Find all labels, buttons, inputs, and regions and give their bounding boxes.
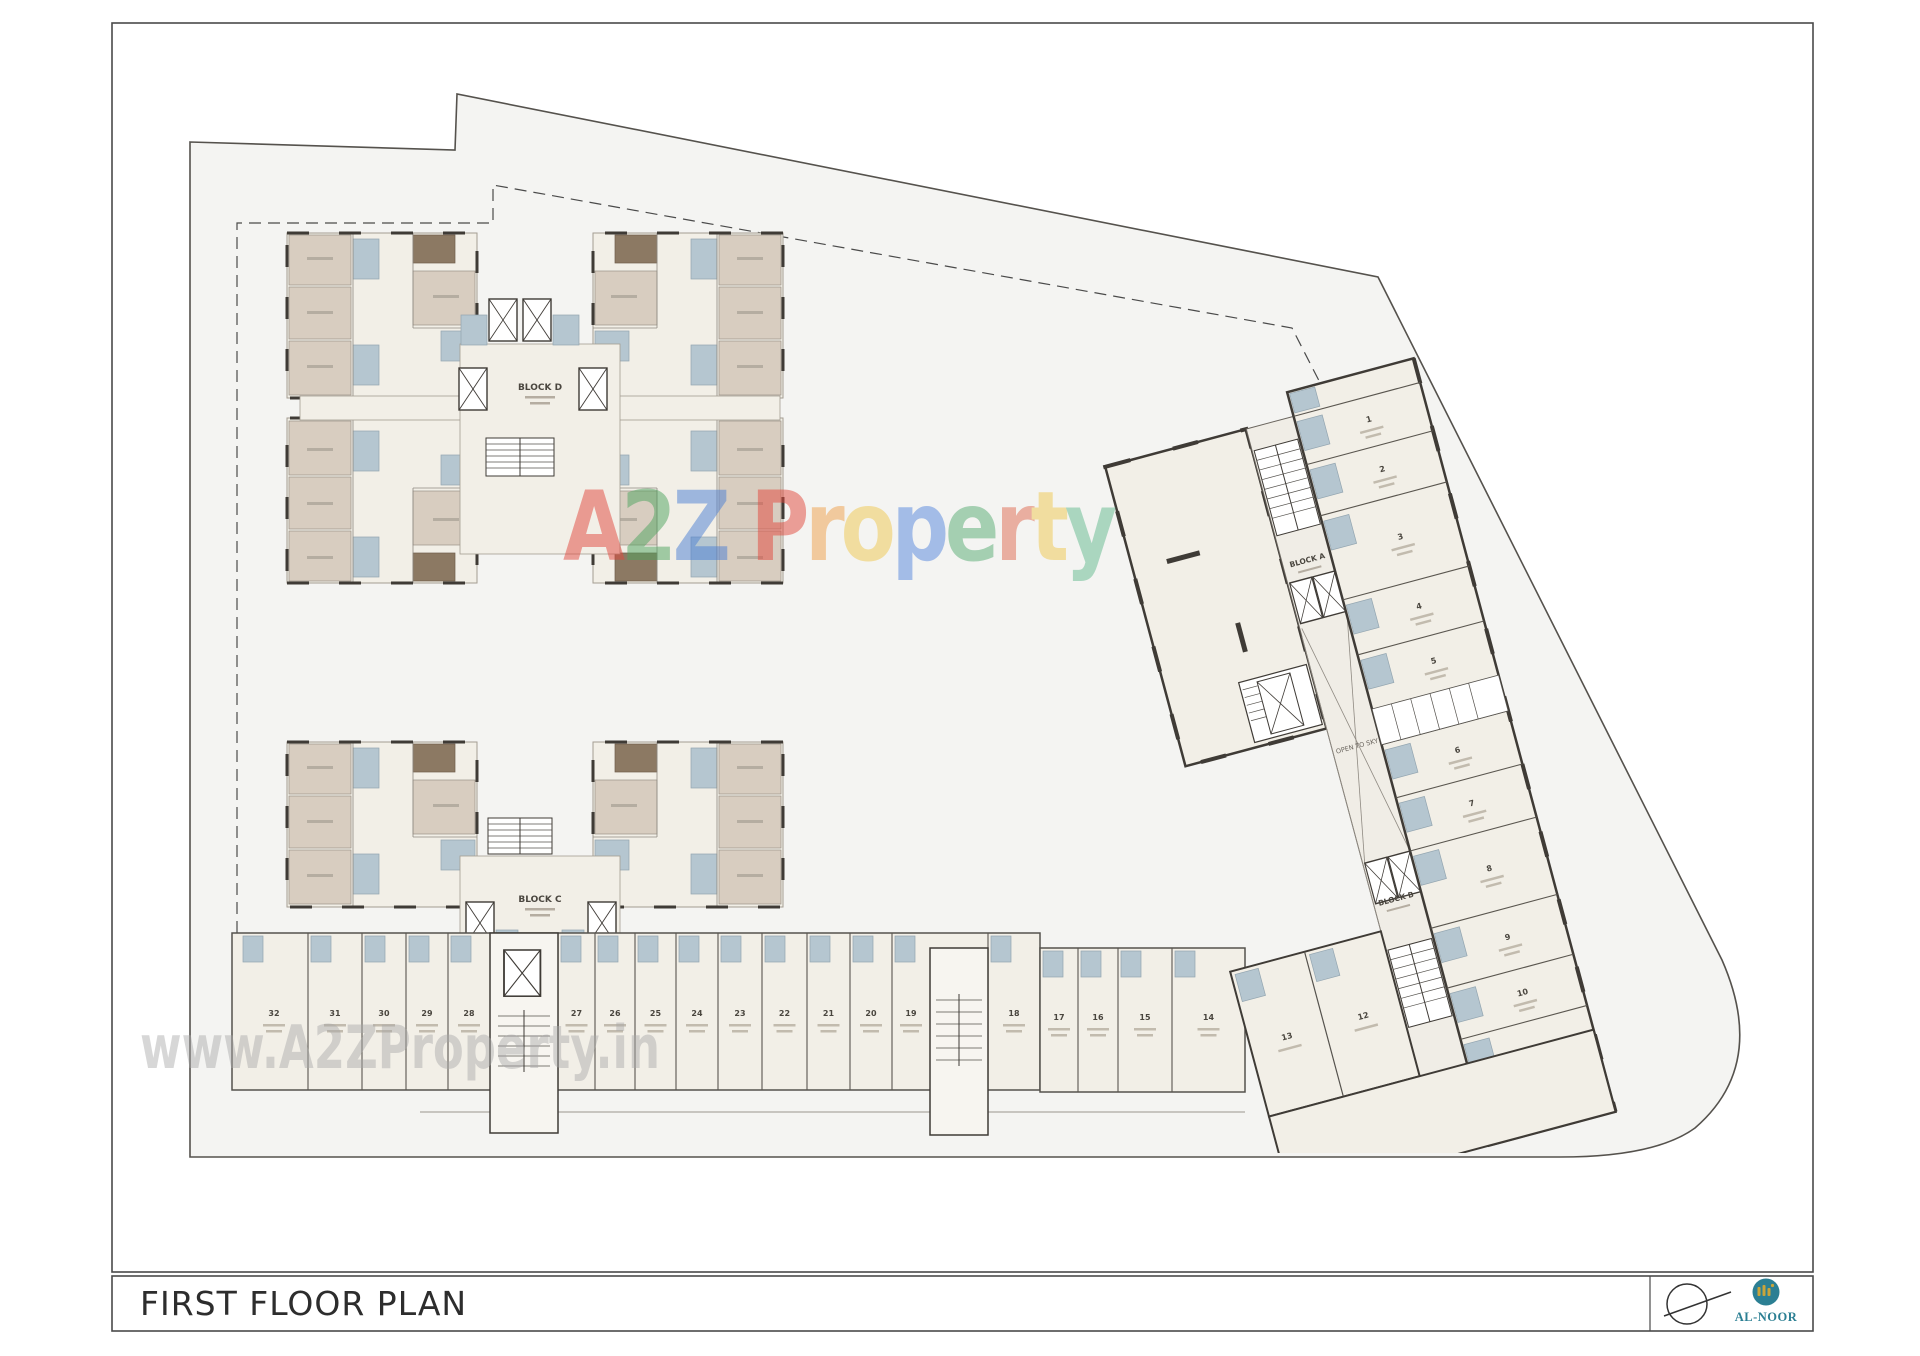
block-c-stair — [488, 818, 552, 854]
shop-bath — [598, 936, 618, 962]
shop-bath — [1175, 951, 1195, 977]
drawing-sheet: BLOCK D BLOCK C 323130292827262524232221… — [0, 0, 1920, 1356]
shop-bath — [853, 936, 873, 962]
sheet-title: FIRST FLOOR PLAN — [140, 1284, 467, 1323]
shop-unit-label: 19 — [905, 1009, 917, 1018]
shop-unit-label: 18 — [1008, 1009, 1020, 1018]
watermark-center: A2Z Property — [563, 471, 1116, 583]
shop-bath — [1081, 951, 1101, 977]
shop-unit-label: 23 — [734, 1009, 745, 1018]
block-c-label: BLOCK C — [518, 895, 562, 905]
shop-unit-label: 22 — [779, 1009, 790, 1018]
shop-bath — [991, 936, 1011, 962]
shop-unit-label: 21 — [823, 1009, 835, 1018]
block-d-stair — [486, 438, 554, 476]
shop-bath — [451, 936, 471, 962]
shop-unit-label: 16 — [1092, 1013, 1104, 1022]
shop-unit-label: 15 — [1139, 1013, 1151, 1022]
shop-bath — [638, 936, 658, 962]
floor-plan-canvas: BLOCK D BLOCK C 323130292827262524232221… — [0, 0, 1920, 1356]
shop-bath — [895, 936, 915, 962]
shop-bath — [721, 936, 741, 962]
al-noor-logo-text: AL-NOOR — [1735, 1310, 1798, 1324]
shop-bath — [409, 936, 429, 962]
shop-bath — [311, 936, 331, 962]
watermark-bottom: www.A2ZProperty.in — [140, 1013, 660, 1083]
block-d-label: BLOCK D — [518, 383, 562, 393]
shop-bath — [365, 936, 385, 962]
shop-bath — [1043, 951, 1063, 977]
shop-unit-label: 14 — [1203, 1013, 1215, 1022]
shop-bath — [810, 936, 830, 962]
shop-bath — [679, 936, 699, 962]
shop-unit-label: 20 — [865, 1009, 877, 1018]
shop-bath — [243, 936, 263, 962]
shop-bath — [561, 936, 581, 962]
shop-row-core-2 — [930, 948, 988, 1135]
shop-bath — [1121, 951, 1141, 977]
shop-bath — [765, 936, 785, 962]
shop-unit-label: 17 — [1053, 1013, 1064, 1022]
shop-unit-label: 24 — [691, 1009, 703, 1018]
